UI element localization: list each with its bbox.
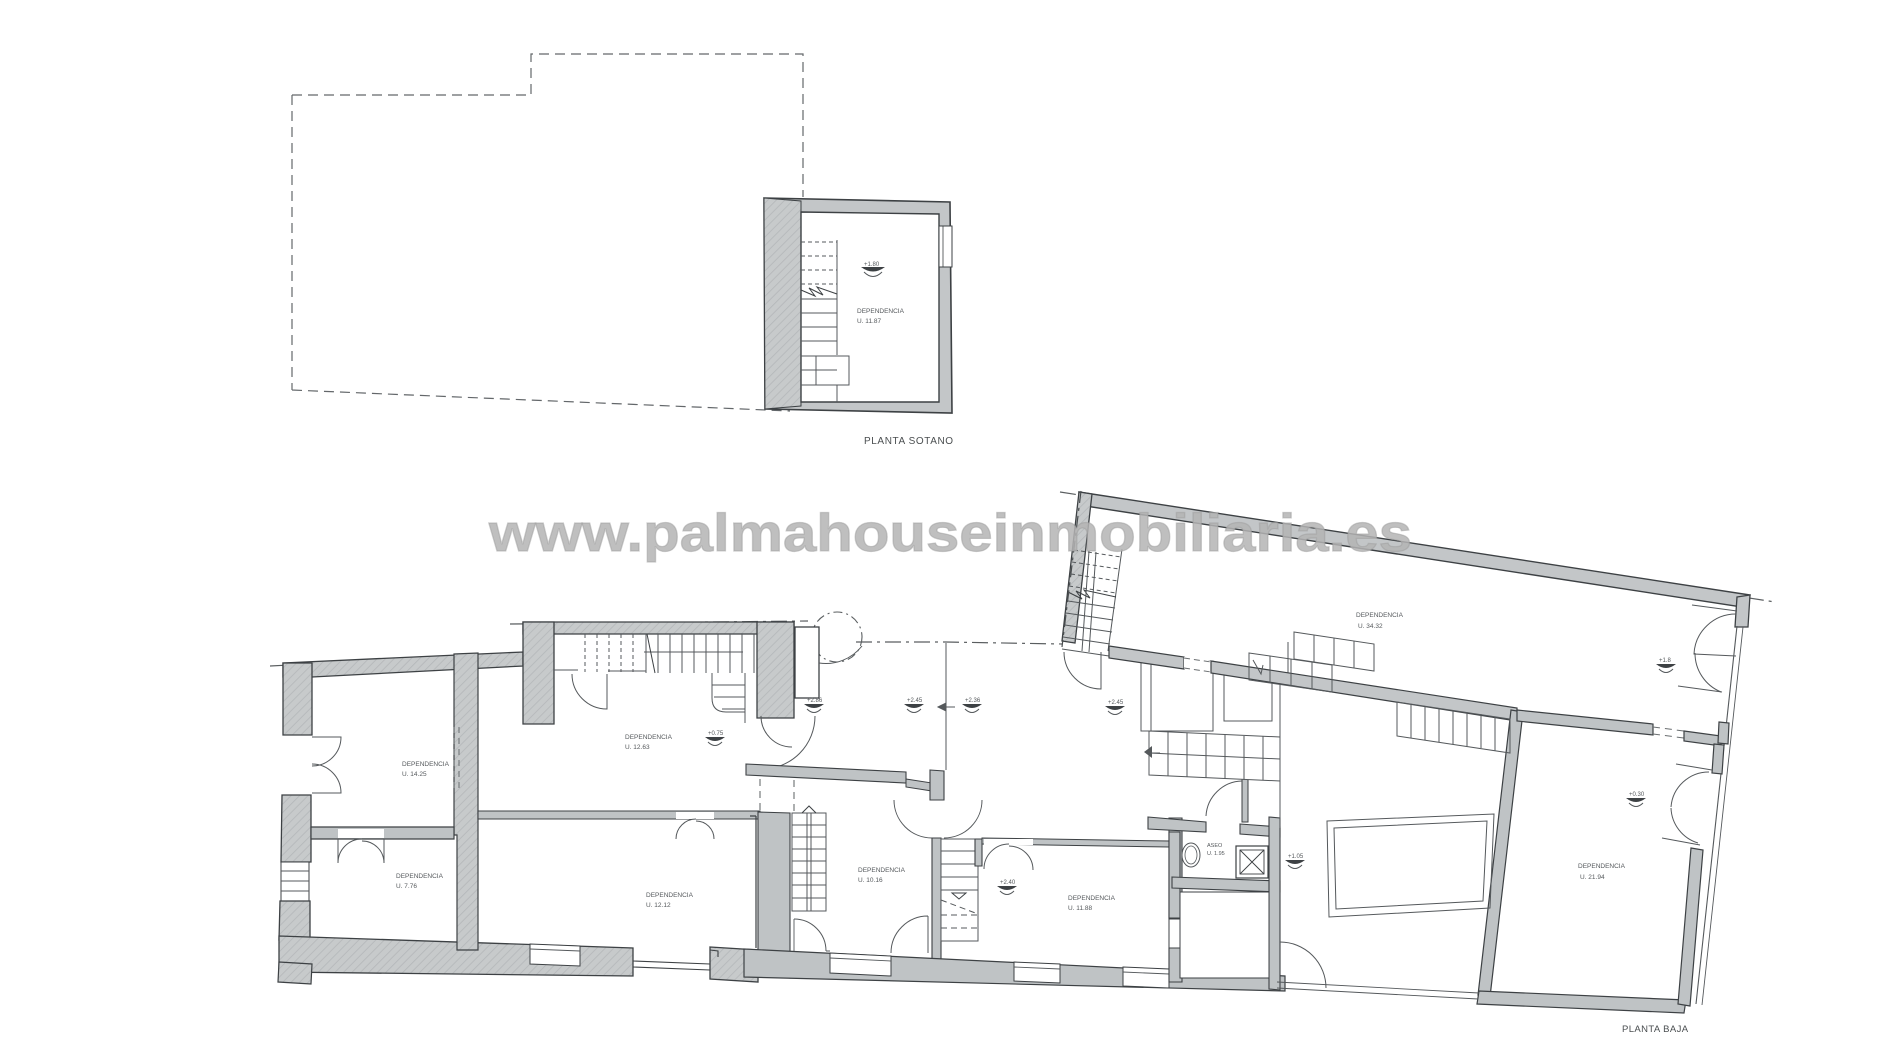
svg-text:U. 14.25: U. 14.25	[402, 771, 427, 778]
svg-text:PLANTA SOTANO: PLANTA SOTANO	[864, 436, 954, 447]
svg-text:+0.30: +0.30	[1629, 792, 1645, 798]
svg-text:DEPENDENCIA: DEPENDENCIA	[1578, 863, 1626, 870]
svg-text:DEPENDENCIA: DEPENDENCIA	[402, 761, 450, 768]
svg-text:U. 11.88: U. 11.88	[1068, 905, 1092, 912]
svg-text:+0.75: +0.75	[708, 731, 724, 737]
svg-text:DEPENDENCIA: DEPENDENCIA	[1356, 612, 1404, 619]
svg-text:PLANTA BAJA: PLANTA BAJA	[1622, 1024, 1689, 1035]
svg-text:U. 11.87: U. 11.87	[857, 318, 881, 325]
svg-text:DEPENDENCIA: DEPENDENCIA	[646, 892, 694, 899]
svg-text:www.palmahouseinmobiliaria.es: www.palmahouseinmobiliaria.es	[488, 504, 1412, 563]
svg-text:+2.36: +2.36	[965, 698, 981, 704]
svg-text:U. 34.32: U. 34.32	[1358, 623, 1383, 630]
svg-text:+2.86: +2.86	[807, 698, 823, 704]
svg-text:+2.40: +2.40	[1000, 880, 1016, 886]
svg-text:+1.05: +1.05	[1288, 854, 1304, 860]
svg-text:U. 12.12: U. 12.12	[646, 902, 671, 909]
svg-text:U. 7.76: U. 7.76	[396, 883, 417, 890]
svg-text:ASEO: ASEO	[1207, 843, 1223, 849]
svg-text:+2.45: +2.45	[907, 698, 923, 704]
svg-text:DEPENDENCIA: DEPENDENCIA	[625, 734, 673, 741]
svg-text:U. 21.94: U. 21.94	[1580, 874, 1605, 881]
svg-text:DEPENDENCIA: DEPENDENCIA	[1068, 895, 1116, 902]
svg-text:+1.8: +1.8	[1659, 658, 1672, 664]
svg-text:U. 10.16: U. 10.16	[858, 877, 883, 884]
svg-text:DEPENDENCIA: DEPENDENCIA	[857, 308, 905, 315]
svg-text:+2.45: +2.45	[1108, 700, 1124, 706]
svg-text:DEPENDENCIA: DEPENDENCIA	[396, 873, 444, 880]
svg-text:U. 1.95: U. 1.95	[1207, 851, 1225, 857]
svg-text:DEPENDENCIA: DEPENDENCIA	[858, 867, 906, 874]
svg-text:U. 12.63: U. 12.63	[625, 744, 650, 751]
